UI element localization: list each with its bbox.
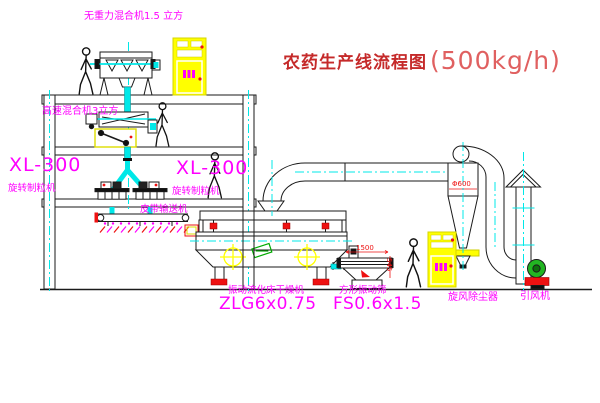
label-xl300-left: XL-300 <box>9 156 81 175</box>
label-granulator-left: 旋转制粒机 <box>8 184 56 194</box>
title-text: 农药生产线流程图 <box>283 48 427 73</box>
vibration-mounts <box>199 220 346 232</box>
fluid-bed-dryer <box>190 201 352 285</box>
foundation-hatch <box>100 227 189 233</box>
pipe-flange <box>123 158 132 161</box>
label-dryer-model: ZLG6x0.75 <box>219 296 317 313</box>
dryer-inlet-funnel <box>258 201 284 211</box>
label-cyclone: 旋风除尘器 <box>448 293 498 303</box>
control-cabinet-right <box>428 232 456 287</box>
title-capacity: (500kg/h) <box>430 46 561 75</box>
person-second-floor <box>156 103 169 146</box>
dim-screen-length: 1500 <box>356 245 374 252</box>
control-cabinet-top <box>173 38 206 95</box>
dim-cyclone-diameter: Φ600 <box>452 181 471 188</box>
granulator-left <box>95 182 129 199</box>
label-gravity-mixer: 无重力混合机1.5 立方 <box>84 12 183 22</box>
dim-screen-height: 545 <box>385 258 392 271</box>
roof-slab <box>42 95 256 104</box>
label-screen-model: FS0.6x1.5 <box>333 296 422 313</box>
label-granulator-center: 旋转制粒机 <box>172 187 220 197</box>
drawing-canvas: 农药生产线流程图 (500kg/h) 无重力混合机1.5 立方 高速混合机3立方… <box>0 0 600 403</box>
label-xl300-center: XL-300 <box>176 159 248 178</box>
label-fan: 引风机 <box>520 292 550 302</box>
cabinet-display <box>435 263 447 271</box>
person-ground <box>406 239 420 287</box>
label-speed-mixer: 高速混合机3立方 <box>42 107 118 117</box>
drawing-title: 农药生产线流程图 (500kg/h) <box>283 46 561 75</box>
person-roof <box>79 48 93 94</box>
label-belt-conveyor: 皮带输送机 <box>140 205 188 215</box>
cabinet-display <box>183 70 195 78</box>
exhaust-duct <box>263 160 458 216</box>
